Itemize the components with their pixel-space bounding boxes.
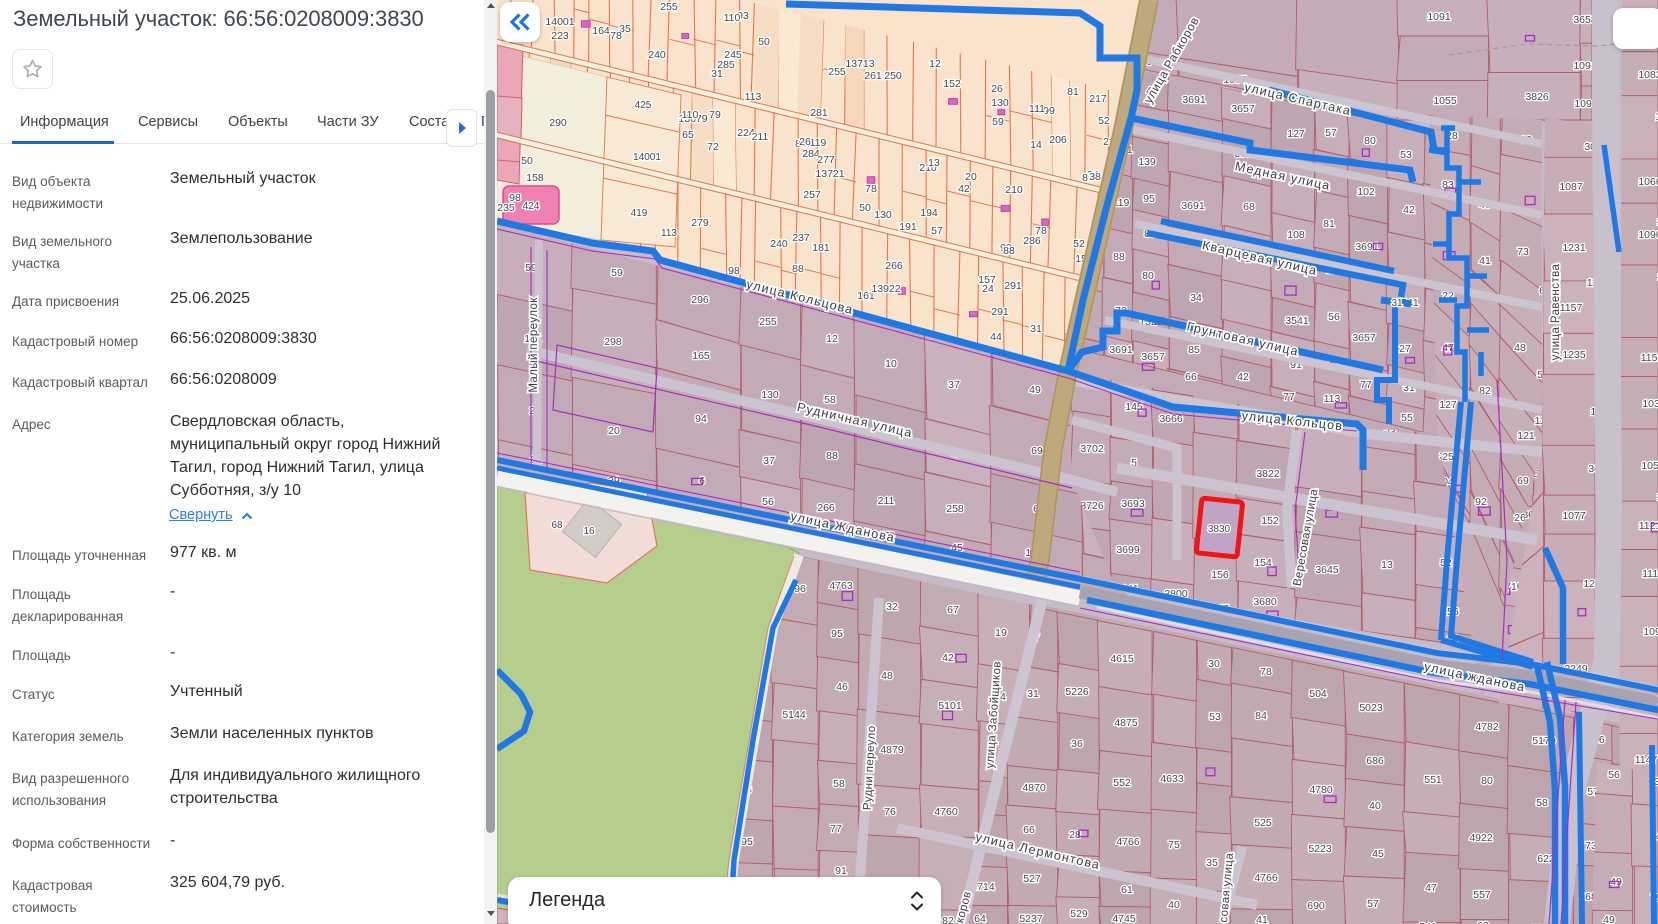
svg-text:77: 77 (1283, 391, 1295, 403)
svg-text:78: 78 (610, 30, 622, 42)
svg-text:20: 20 (608, 425, 620, 437)
svg-text:266: 266 (817, 502, 835, 514)
svg-text:79: 79 (709, 109, 721, 121)
svg-text:66: 66 (1185, 371, 1197, 383)
svg-text:20: 20 (965, 171, 977, 183)
svg-text:40: 40 (1168, 899, 1180, 911)
svg-text:25: 25 (1442, 451, 1454, 463)
svg-text:65: 65 (682, 129, 694, 141)
svg-text:94: 94 (695, 413, 707, 425)
svg-text:4745: 4745 (1112, 913, 1136, 924)
svg-text:164: 164 (592, 25, 610, 37)
svg-text:257: 257 (803, 189, 821, 201)
svg-text:36: 36 (1071, 738, 1083, 750)
svg-text:4763: 4763 (829, 580, 853, 592)
svg-text:4615: 4615 (1110, 653, 1134, 665)
svg-text:59: 59 (611, 267, 623, 279)
svg-text:13713: 13713 (845, 58, 874, 70)
svg-text:5101: 5101 (938, 700, 962, 712)
svg-text:13721: 13721 (815, 168, 844, 180)
svg-text:194: 194 (920, 207, 938, 219)
svg-text:255: 255 (660, 1, 678, 13)
svg-text:31: 31 (711, 68, 723, 80)
svg-text:42: 42 (1403, 204, 1415, 216)
svg-text:98: 98 (728, 265, 740, 277)
svg-text:4760: 4760 (934, 806, 958, 818)
svg-text:57: 57 (1325, 127, 1337, 139)
svg-text:14001: 14001 (545, 16, 574, 28)
svg-text:245: 245 (724, 49, 742, 61)
svg-text:61: 61 (1121, 884, 1133, 896)
svg-text:279: 279 (691, 217, 709, 229)
svg-text:16: 16 (583, 526, 595, 537)
svg-text:250: 250 (884, 70, 902, 82)
svg-text:88: 88 (1003, 245, 1015, 257)
svg-text:240: 240 (648, 49, 666, 61)
svg-text:57: 57 (1367, 898, 1379, 910)
svg-text:210: 210 (1005, 184, 1023, 196)
svg-text:110: 110 (724, 12, 741, 24)
svg-text:84: 84 (1255, 710, 1267, 722)
svg-text:98: 98 (509, 192, 521, 204)
svg-text:13922: 13922 (871, 283, 900, 295)
svg-text:1091: 1091 (1643, 626, 1658, 638)
svg-text:50: 50 (758, 36, 770, 48)
svg-text:3645: 3645 (1315, 564, 1339, 576)
svg-text:113: 113 (745, 91, 762, 103)
svg-text:3680: 3680 (1253, 596, 1277, 608)
svg-text:291: 291 (1004, 280, 1022, 292)
svg-text:181: 181 (812, 242, 830, 254)
svg-text:88: 88 (826, 450, 838, 462)
svg-text:4922: 4922 (1469, 832, 1493, 844)
svg-text:56: 56 (1328, 311, 1340, 323)
svg-text:48: 48 (1514, 342, 1526, 354)
svg-text:1235: 1235 (1562, 349, 1586, 361)
svg-text:91: 91 (835, 865, 847, 877)
svg-text:3657: 3657 (1231, 103, 1255, 115)
svg-text:3693: 3693 (1121, 498, 1145, 510)
svg-text:35: 35 (1206, 857, 1218, 869)
svg-text:157: 157 (978, 274, 996, 286)
svg-text:1054: 1054 (1641, 460, 1658, 472)
svg-text:552: 552 (1113, 777, 1131, 789)
svg-text:52: 52 (1098, 115, 1110, 127)
svg-text:551: 551 (1424, 774, 1442, 786)
svg-text:5226: 5226 (1065, 686, 1089, 698)
svg-text:1121: 1121 (1639, 520, 1658, 532)
svg-text:56: 56 (1608, 769, 1620, 781)
svg-text:58: 58 (824, 394, 836, 406)
svg-text:557: 557 (1473, 889, 1491, 901)
svg-text:1055: 1055 (1433, 95, 1457, 107)
svg-text:108: 108 (1287, 229, 1305, 241)
svg-text:211: 211 (752, 131, 769, 143)
svg-text:3702: 3702 (1080, 443, 1104, 455)
svg-text:69: 69 (1517, 475, 1529, 487)
svg-text:277: 277 (817, 154, 835, 166)
svg-text:5223: 5223 (1308, 843, 1332, 855)
svg-text:12: 12 (929, 58, 941, 70)
svg-text:3541: 3541 (1285, 315, 1309, 327)
svg-text:3691: 3691 (1109, 344, 1133, 356)
svg-text:1087: 1087 (1559, 181, 1583, 193)
svg-text:130: 130 (874, 209, 892, 221)
svg-text:13: 13 (928, 157, 940, 169)
svg-text:34: 34 (1190, 292, 1202, 304)
svg-text:42: 42 (942, 652, 954, 664)
svg-text:4766: 4766 (1254, 872, 1278, 884)
svg-text:37: 37 (948, 379, 960, 391)
svg-text:58: 58 (1536, 797, 1548, 809)
svg-text:261: 261 (864, 70, 882, 82)
svg-text:690: 690 (1307, 900, 1325, 912)
svg-text:4875: 4875 (1114, 717, 1138, 729)
svg-text:529: 529 (1070, 908, 1088, 920)
svg-text:1077: 1077 (1562, 510, 1586, 522)
svg-text:12: 12 (826, 333, 838, 345)
svg-text:41: 41 (1256, 914, 1268, 924)
svg-text:13: 13 (1381, 559, 1393, 571)
svg-text:3657: 3657 (1352, 332, 1376, 344)
svg-text:78: 78 (865, 183, 877, 195)
svg-text:78: 78 (1035, 225, 1047, 237)
svg-text:525: 525 (1254, 817, 1272, 829)
svg-text:57: 57 (931, 225, 943, 237)
svg-text:32: 32 (886, 601, 898, 613)
svg-text:3657: 3657 (1141, 351, 1165, 363)
svg-text:27: 27 (1399, 343, 1411, 355)
svg-text:10: 10 (885, 358, 897, 370)
svg-text:255: 255 (828, 66, 846, 78)
svg-text:26: 26 (991, 83, 1003, 95)
svg-text:73: 73 (1517, 246, 1529, 258)
svg-text:77: 77 (1360, 379, 1372, 391)
svg-text:298: 298 (604, 336, 622, 348)
svg-text:3822: 3822 (1256, 468, 1280, 480)
svg-text:3699: 3699 (1116, 544, 1140, 556)
svg-text:111: 111 (1029, 103, 1045, 115)
svg-text:68: 68 (551, 520, 563, 531)
svg-text:14001: 14001 (633, 152, 661, 163)
svg-text:64: 64 (974, 913, 986, 924)
svg-text:44: 44 (990, 331, 1002, 343)
svg-text:76: 76 (884, 806, 896, 818)
svg-text:152: 152 (943, 78, 961, 90)
svg-text:81: 81 (1323, 218, 1335, 230)
svg-text:217: 217 (1089, 93, 1107, 105)
svg-text:88: 88 (1113, 251, 1125, 263)
svg-text:3691: 3691 (1181, 200, 1205, 212)
svg-text:46: 46 (836, 681, 848, 693)
svg-text:88: 88 (792, 263, 804, 275)
svg-text:291: 291 (991, 306, 1009, 318)
svg-text:63: 63 (1477, 920, 1489, 924)
svg-text:130: 130 (991, 97, 1009, 109)
svg-text:50: 50 (859, 202, 871, 214)
svg-text:55: 55 (1401, 412, 1413, 424)
svg-text:425: 425 (635, 100, 652, 111)
svg-text:42: 42 (1237, 371, 1249, 383)
svg-text:1157: 1157 (1560, 302, 1583, 314)
svg-text:152: 152 (1261, 515, 1279, 527)
svg-text:113: 113 (661, 228, 677, 239)
svg-text:95: 95 (741, 836, 753, 848)
svg-text:206: 206 (1049, 134, 1067, 146)
svg-text:83: 83 (1442, 179, 1454, 191)
svg-text:Малый переулок: Малый переулок (528, 297, 540, 393)
svg-text:30: 30 (1208, 658, 1220, 670)
svg-text:5237: 5237 (1019, 913, 1043, 924)
svg-text:191: 191 (899, 221, 917, 233)
svg-text:139: 139 (1138, 156, 1156, 168)
svg-text:58: 58 (833, 778, 845, 790)
svg-text:266: 266 (885, 260, 903, 272)
svg-text:80: 80 (1142, 270, 1154, 282)
svg-text:52: 52 (1073, 238, 1085, 250)
svg-text:1152: 1152 (1641, 352, 1658, 364)
svg-text:80: 80 (1481, 775, 1493, 787)
svg-text:14: 14 (1030, 139, 1042, 151)
svg-text:686: 686 (1366, 755, 1384, 767)
svg-text:4782: 4782 (1475, 721, 1499, 733)
svg-text:50: 50 (521, 155, 533, 167)
svg-text:1090: 1090 (1638, 229, 1658, 241)
svg-text:49: 49 (1029, 384, 1041, 396)
svg-text:211: 211 (878, 495, 895, 507)
svg-text:3691: 3691 (1182, 94, 1206, 106)
svg-text:82: 82 (942, 915, 954, 924)
svg-text:237: 237 (792, 232, 810, 244)
svg-text:53: 53 (1209, 711, 1221, 723)
svg-text:255: 255 (759, 316, 777, 328)
svg-text:1091: 1091 (1427, 11, 1451, 23)
svg-text:45: 45 (1372, 848, 1384, 860)
svg-text:1231: 1231 (1562, 242, 1586, 254)
svg-text:504: 504 (1309, 688, 1327, 700)
svg-text:110: 110 (682, 109, 699, 121)
svg-text:81: 81 (1067, 86, 1079, 98)
svg-text:37: 37 (763, 455, 775, 467)
svg-text:424: 424 (523, 201, 540, 212)
svg-text:296: 296 (691, 294, 709, 306)
svg-text:49: 49 (1603, 914, 1615, 924)
svg-text:102: 102 (1357, 186, 1375, 198)
svg-text:68: 68 (1243, 201, 1255, 213)
svg-text:121: 121 (1517, 430, 1535, 442)
svg-text:240: 240 (770, 238, 788, 250)
svg-text:59: 59 (992, 116, 1004, 128)
svg-text:80: 80 (1364, 135, 1376, 147)
svg-text:165: 165 (692, 350, 710, 362)
svg-text:31: 31 (1027, 688, 1039, 700)
svg-text:92: 92 (1475, 496, 1487, 508)
svg-text:223: 223 (551, 30, 569, 42)
svg-text:5023: 5023 (1359, 702, 1383, 714)
svg-text:158: 158 (526, 172, 544, 184)
svg-text:48: 48 (881, 670, 893, 682)
svg-text:улица Равенства: улица Равенства (1550, 263, 1562, 360)
svg-text:19: 19 (995, 627, 1007, 639)
svg-text:130: 130 (761, 389, 779, 401)
svg-text:66: 66 (1023, 824, 1035, 836)
svg-text:38: 38 (1089, 171, 1101, 183)
svg-text:419: 419 (631, 208, 648, 219)
svg-text:527: 527 (1023, 873, 1041, 885)
svg-text:1082: 1082 (1638, 69, 1658, 81)
svg-text:95: 95 (1143, 193, 1155, 205)
svg-text:95: 95 (831, 628, 843, 640)
svg-text:127: 127 (1287, 128, 1305, 140)
svg-text:31: 31 (1391, 298, 1403, 309)
svg-text:3830: 3830 (1208, 524, 1231, 535)
svg-text:67: 67 (947, 604, 959, 616)
svg-text:281: 281 (810, 107, 828, 119)
svg-text:4879: 4879 (880, 744, 904, 756)
svg-text:31: 31 (1030, 323, 1042, 335)
svg-text:42: 42 (958, 183, 970, 195)
svg-text:69: 69 (1031, 445, 1043, 457)
svg-text:26: 26 (799, 136, 811, 148)
svg-text:56: 56 (762, 496, 774, 508)
svg-text:290: 290 (549, 117, 567, 129)
svg-text:1066: 1066 (1638, 176, 1658, 188)
svg-text:4766: 4766 (1116, 836, 1140, 848)
svg-text:47: 47 (1425, 882, 1437, 894)
svg-text:1030: 1030 (1642, 398, 1658, 410)
svg-text:53: 53 (1400, 149, 1412, 161)
svg-text:77: 77 (830, 823, 842, 835)
svg-text:1116: 1116 (1642, 568, 1658, 580)
svg-text:41: 41 (1479, 255, 1491, 267)
svg-text:5144: 5144 (782, 709, 806, 721)
svg-text:4780: 4780 (1309, 784, 1333, 796)
svg-text:119: 119 (810, 137, 827, 149)
svg-text:258: 258 (946, 503, 964, 515)
svg-text:127: 127 (1439, 399, 1457, 411)
svg-text:75: 75 (1168, 839, 1180, 851)
svg-text:40: 40 (1369, 800, 1381, 812)
svg-text:4870: 4870 (1022, 782, 1046, 794)
svg-text:85: 85 (1188, 344, 1200, 356)
svg-text:4633: 4633 (1160, 773, 1184, 785)
svg-text:78: 78 (1260, 666, 1272, 678)
svg-text:156: 156 (1211, 569, 1229, 581)
svg-text:3826: 3826 (1525, 91, 1549, 103)
svg-text:72: 72 (707, 141, 719, 153)
